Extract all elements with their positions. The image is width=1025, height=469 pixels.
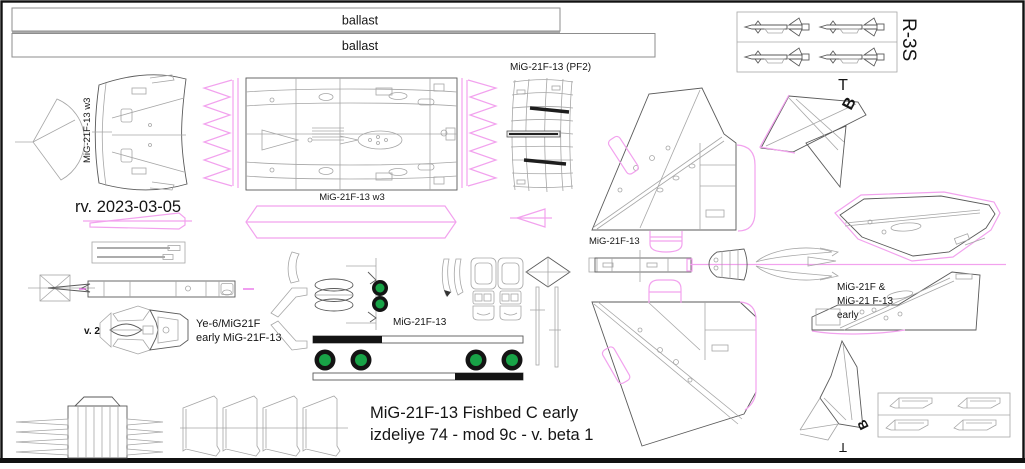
marker-t-top: T xyxy=(838,77,848,94)
sawtooth-strip-left xyxy=(204,78,238,188)
seat-rail-parts xyxy=(442,259,463,297)
wing-upper-details xyxy=(594,90,736,230)
main-wheel xyxy=(502,350,523,371)
spar-details xyxy=(16,406,163,458)
missile-part xyxy=(745,18,809,36)
marker-b-bottom: B xyxy=(854,417,872,432)
spar-assembly xyxy=(16,397,163,458)
title-line2: izdeliye 74 - mod 9c - v. beta 1 xyxy=(370,426,593,444)
main-wheels-row xyxy=(315,350,523,371)
svg-text:MiG-21 F-13: MiG-21 F-13 xyxy=(837,296,894,307)
svg-text:MiG-21F &: MiG-21F & xyxy=(837,282,886,293)
svg-text:early MiG-21F-13: early MiG-21F-13 xyxy=(196,332,282,344)
missile-part xyxy=(820,18,884,36)
svg-text:early: early xyxy=(837,310,859,321)
main-wheel xyxy=(351,350,372,371)
cockpit-version-label: v. 2 xyxy=(84,326,100,337)
pf2-label: MiG-21F-13 (PF2) xyxy=(510,62,591,73)
ejection-seat-parts xyxy=(471,258,523,320)
magenta-hexagon-part xyxy=(246,206,456,238)
formers-row xyxy=(180,396,348,456)
fuselage-skin-panel: MiG-21F-13 w3 xyxy=(246,78,457,203)
fuselage-strip-part xyxy=(79,281,254,297)
wing-mid-panel xyxy=(835,192,1000,261)
title-line1: MiG-21F-13 Fishbed C early xyxy=(370,404,579,422)
gear-strut-assembly: MiG-21F-13 xyxy=(346,258,447,330)
main-wheel xyxy=(466,350,487,371)
missile-box-label: R-3S xyxy=(898,18,919,61)
pylon-part xyxy=(886,420,928,430)
cockpit-label: Ye-6/MiG21F early MiG-21F-13 xyxy=(196,318,282,344)
tire-stack-part xyxy=(315,279,353,311)
kite-strut-part xyxy=(526,257,597,367)
pylon-parts-box xyxy=(878,393,1010,437)
ballast-bar-top: ballast xyxy=(12,8,560,31)
former-part xyxy=(223,396,260,456)
ballast-bottom-label: ballast xyxy=(342,39,379,53)
plan-sheet: ballast ballast MiG-21F-13 w3 xyxy=(0,0,1025,469)
title-block: MiG-21F-13 Fishbed C early izdeliye 74 -… xyxy=(370,404,593,444)
glue-bar-bottom xyxy=(313,373,523,380)
missile-part xyxy=(820,48,884,66)
revision-label: rv. 2023-03-05 xyxy=(75,198,181,216)
wing-panel-label: MiG-21F-13 xyxy=(589,236,640,247)
pf2-panel: MiG-21F-13 (PF2) xyxy=(507,62,591,192)
rear-strip-part xyxy=(595,250,692,282)
left-skin-part: MiG-21F-13 w3 xyxy=(82,75,187,190)
fuselage-skin-details xyxy=(246,78,457,190)
former-part xyxy=(303,396,340,456)
former-part xyxy=(183,396,220,456)
marker-t-bottom: T xyxy=(839,440,847,455)
sawtooth-strip-right xyxy=(462,78,496,188)
wing-mid-details xyxy=(845,210,985,245)
wing-panel-lower xyxy=(592,280,756,446)
left-skin-details xyxy=(92,75,186,190)
left-skin-label: MiG-21F-13 w3 xyxy=(82,98,93,163)
intake-fan-part xyxy=(15,99,85,180)
ballast-bar-bottom: ballast xyxy=(12,32,655,57)
tail-fin-label: MiG-21F & MiG-21 F-13 early xyxy=(837,282,894,321)
magenta-taper-part xyxy=(510,209,552,227)
cockpit-tub-part: v. 2 xyxy=(84,306,188,354)
pitot-parts-box xyxy=(92,242,185,263)
main-wheel xyxy=(315,350,336,371)
ballast-top-label: ballast xyxy=(342,14,379,28)
missile-part xyxy=(745,48,809,66)
alignment-square xyxy=(28,275,95,301)
missile-box: R-3S xyxy=(737,12,919,72)
gear-wheel xyxy=(372,280,388,296)
pylon-part xyxy=(954,420,996,430)
gear-label: MiG-21F-13 xyxy=(393,317,447,328)
tail-fin-part: MiG-21F & MiG-21 F-13 early xyxy=(808,257,980,334)
pylon-part xyxy=(890,398,932,408)
pylon-part xyxy=(958,398,1000,408)
glue-bar-top xyxy=(313,336,523,343)
former-part xyxy=(263,396,300,456)
gear-wheel xyxy=(372,296,388,312)
svg-text:Ye-6/MiG21F: Ye-6/MiG21F xyxy=(196,318,261,330)
wing-panel-upper: MiG-21F-13 xyxy=(589,88,755,252)
center-skin-label: MiG-21F-13 w3 xyxy=(319,192,384,203)
wing-lower-details xyxy=(594,302,756,424)
